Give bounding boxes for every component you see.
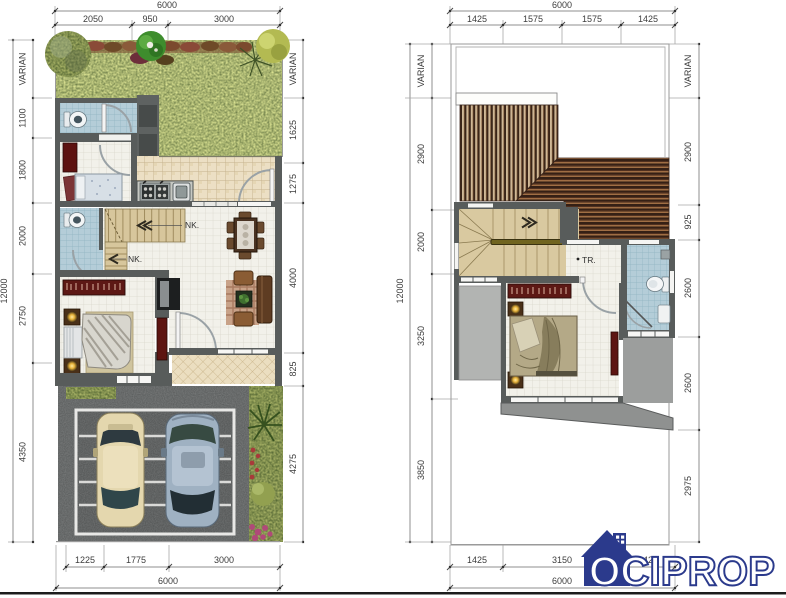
svg-text:12000: 12000 [395, 278, 405, 303]
svg-text:1425: 1425 [638, 14, 658, 24]
svg-text:2975: 2975 [683, 476, 693, 496]
svg-text:950: 950 [142, 14, 157, 24]
svg-text:2600: 2600 [683, 278, 693, 298]
svg-text:2900: 2900 [416, 144, 426, 164]
svg-text:6000: 6000 [157, 0, 177, 10]
svg-text:6000: 6000 [552, 0, 572, 10]
svg-text:2050: 2050 [83, 14, 103, 24]
svg-text:1100: 1100 [18, 108, 28, 127]
svg-text:3250: 3250 [416, 326, 426, 346]
svg-text:1425: 1425 [467, 14, 487, 24]
svg-text:12000: 12000 [0, 278, 9, 303]
svg-text:1275: 1275 [288, 174, 298, 194]
svg-text:VARIAN: VARIAN [288, 53, 298, 86]
svg-text:3000: 3000 [214, 14, 234, 24]
svg-text:2000: 2000 [416, 232, 426, 252]
svg-text:4350: 4350 [18, 442, 28, 462]
svg-text:1800: 1800 [18, 160, 28, 180]
svg-text:2000: 2000 [18, 226, 28, 246]
svg-text:VARIAN: VARIAN [416, 55, 426, 88]
svg-text:3000: 3000 [214, 555, 234, 565]
svg-text:2600: 2600 [683, 373, 693, 393]
svg-text:VARIAN: VARIAN [18, 53, 28, 86]
svg-text:3150: 3150 [552, 555, 572, 565]
svg-text:1225: 1225 [75, 555, 95, 565]
svg-text:6000: 6000 [552, 576, 572, 586]
svg-text:4000: 4000 [288, 268, 298, 288]
svg-text:VARIAN: VARIAN [683, 55, 693, 88]
svg-text:TR.: TR. [582, 255, 596, 265]
svg-text:1425: 1425 [467, 555, 487, 565]
svg-text:925: 925 [683, 214, 693, 229]
svg-text:1575: 1575 [582, 14, 602, 24]
svg-text:825: 825 [288, 361, 298, 376]
svg-text:NK.: NK. [128, 254, 142, 264]
svg-text:1625: 1625 [288, 120, 298, 140]
svg-text:OCIPROP: OCIPROP [589, 548, 775, 594]
svg-text:1775: 1775 [126, 555, 146, 565]
svg-text:6000: 6000 [158, 576, 178, 586]
svg-text:2900: 2900 [683, 142, 693, 162]
svg-text:3850: 3850 [416, 460, 426, 480]
svg-text:NK.: NK. [185, 220, 199, 230]
svg-text:4275: 4275 [288, 454, 298, 474]
svg-text:1575: 1575 [523, 14, 543, 24]
svg-text:2750: 2750 [18, 306, 28, 326]
